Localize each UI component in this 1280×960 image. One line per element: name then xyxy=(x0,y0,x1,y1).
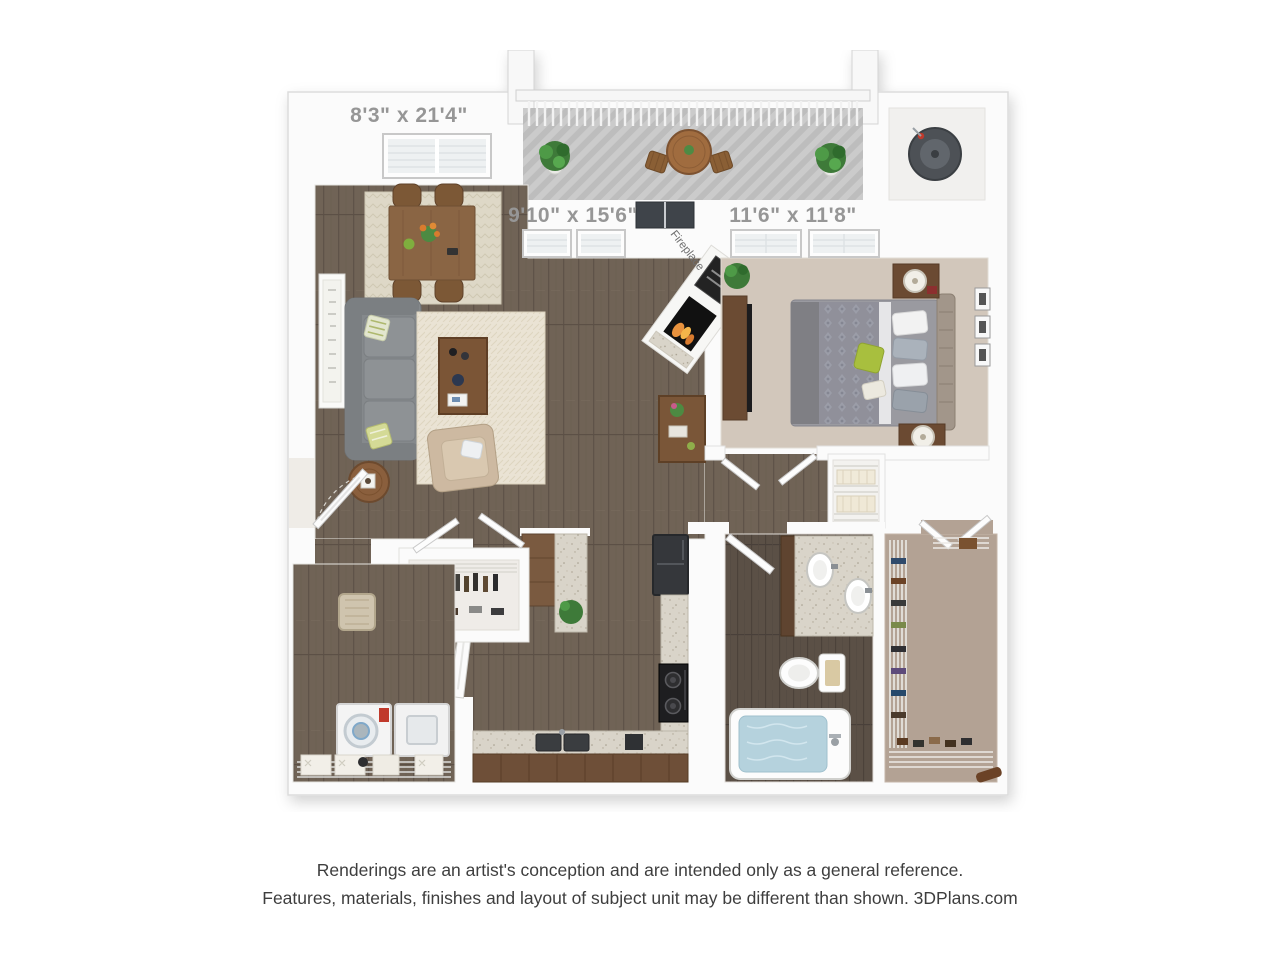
tub-faucet xyxy=(831,738,839,746)
closet-bag xyxy=(959,538,977,549)
entry-threshold xyxy=(289,458,315,528)
water-heater-closet xyxy=(889,108,985,200)
double-vanity xyxy=(781,536,873,636)
bed-foot-blanket xyxy=(791,302,819,424)
walk-in-closet xyxy=(885,515,1003,783)
disclaimer-line-1: Renderings are an artist's conception an… xyxy=(0,856,1280,884)
refrigerator xyxy=(653,535,688,595)
sofa xyxy=(345,298,421,460)
bed-accent-pillow xyxy=(853,342,885,374)
hall-floor xyxy=(705,454,828,528)
armchair xyxy=(426,423,499,493)
kitchen-counter-right xyxy=(659,595,688,753)
bathtub xyxy=(730,709,850,779)
kitchen-counter-bottom xyxy=(473,729,688,782)
laundry-entry-floor xyxy=(315,539,371,566)
living-dimension-label: 9'10" x 15'6" xyxy=(508,204,638,227)
leaning-mirror xyxy=(319,274,345,408)
coffee-maker xyxy=(625,734,643,750)
sofa-pillow-top xyxy=(364,315,391,342)
laundry-room xyxy=(293,564,455,782)
balcony-railing xyxy=(516,90,870,101)
bedroom-tv xyxy=(747,304,752,412)
range xyxy=(659,664,688,722)
linen-closet xyxy=(828,454,885,528)
floor-plan: 8'3" x 21'4" 9'10" x 15'6" 11'6" x 11'8"… xyxy=(233,50,1043,812)
washer xyxy=(337,704,391,756)
laundry-basket xyxy=(339,594,375,630)
coffee-table xyxy=(439,338,487,414)
living-window-2 xyxy=(577,230,625,257)
detergent-box xyxy=(379,708,389,722)
dryer xyxy=(395,704,449,756)
linen-closet-interior xyxy=(833,460,879,522)
bedroom-dimension-label: 11'6" x 11'8" xyxy=(729,204,857,227)
bedroom-window-1 xyxy=(731,230,801,257)
living-window-1 xyxy=(523,230,571,257)
balcony-dimension-label: 8'3" x 21'4" xyxy=(350,104,468,127)
bedroom-dresser xyxy=(723,296,747,420)
disclaimer-line-2: Features, materials, finishes and layout… xyxy=(0,884,1280,912)
bedroom-window-2 xyxy=(809,230,879,257)
nightstand-top xyxy=(893,264,939,298)
laundry-shelf xyxy=(297,755,451,777)
dining-table xyxy=(389,206,475,280)
headboard xyxy=(937,294,955,430)
dining-window xyxy=(383,134,491,178)
console-table xyxy=(659,396,705,462)
bed xyxy=(791,294,955,430)
wall-art-frames xyxy=(975,288,990,366)
bedroom-plant xyxy=(724,263,750,289)
disclaimer: Renderings are an artist's conception an… xyxy=(0,856,1280,912)
